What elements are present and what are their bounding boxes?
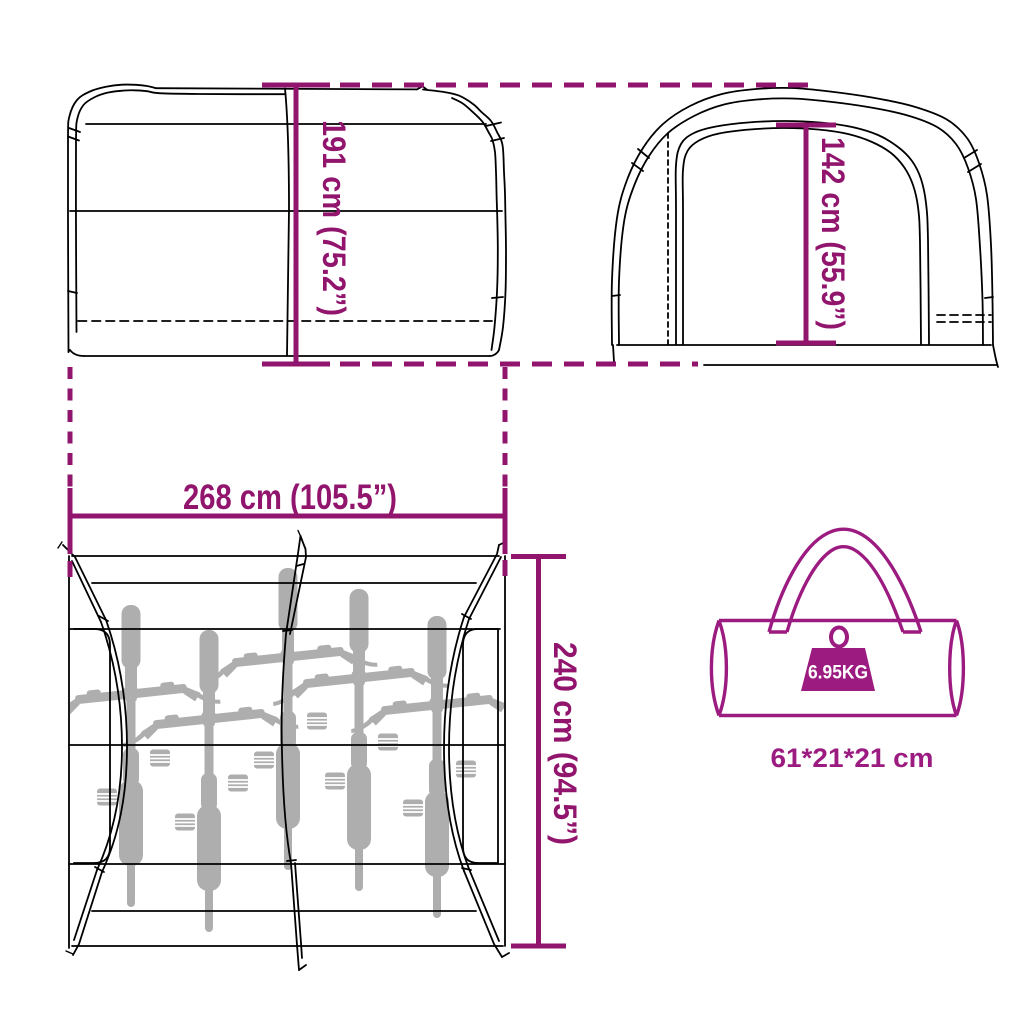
svg-text:240 cm (94.5”): 240 cm (94.5”) [547, 642, 583, 845]
svg-text:61*21*21 cm: 61*21*21 cm [771, 743, 934, 773]
svg-text:268 cm (105.5”): 268 cm (105.5”) [183, 478, 397, 517]
svg-text:6.95KG: 6.95KG [808, 663, 868, 684]
svg-text:142 cm (55.9”): 142 cm (55.9”) [815, 137, 851, 330]
svg-text:191 cm (75.2”): 191 cm (75.2”) [316, 120, 352, 316]
